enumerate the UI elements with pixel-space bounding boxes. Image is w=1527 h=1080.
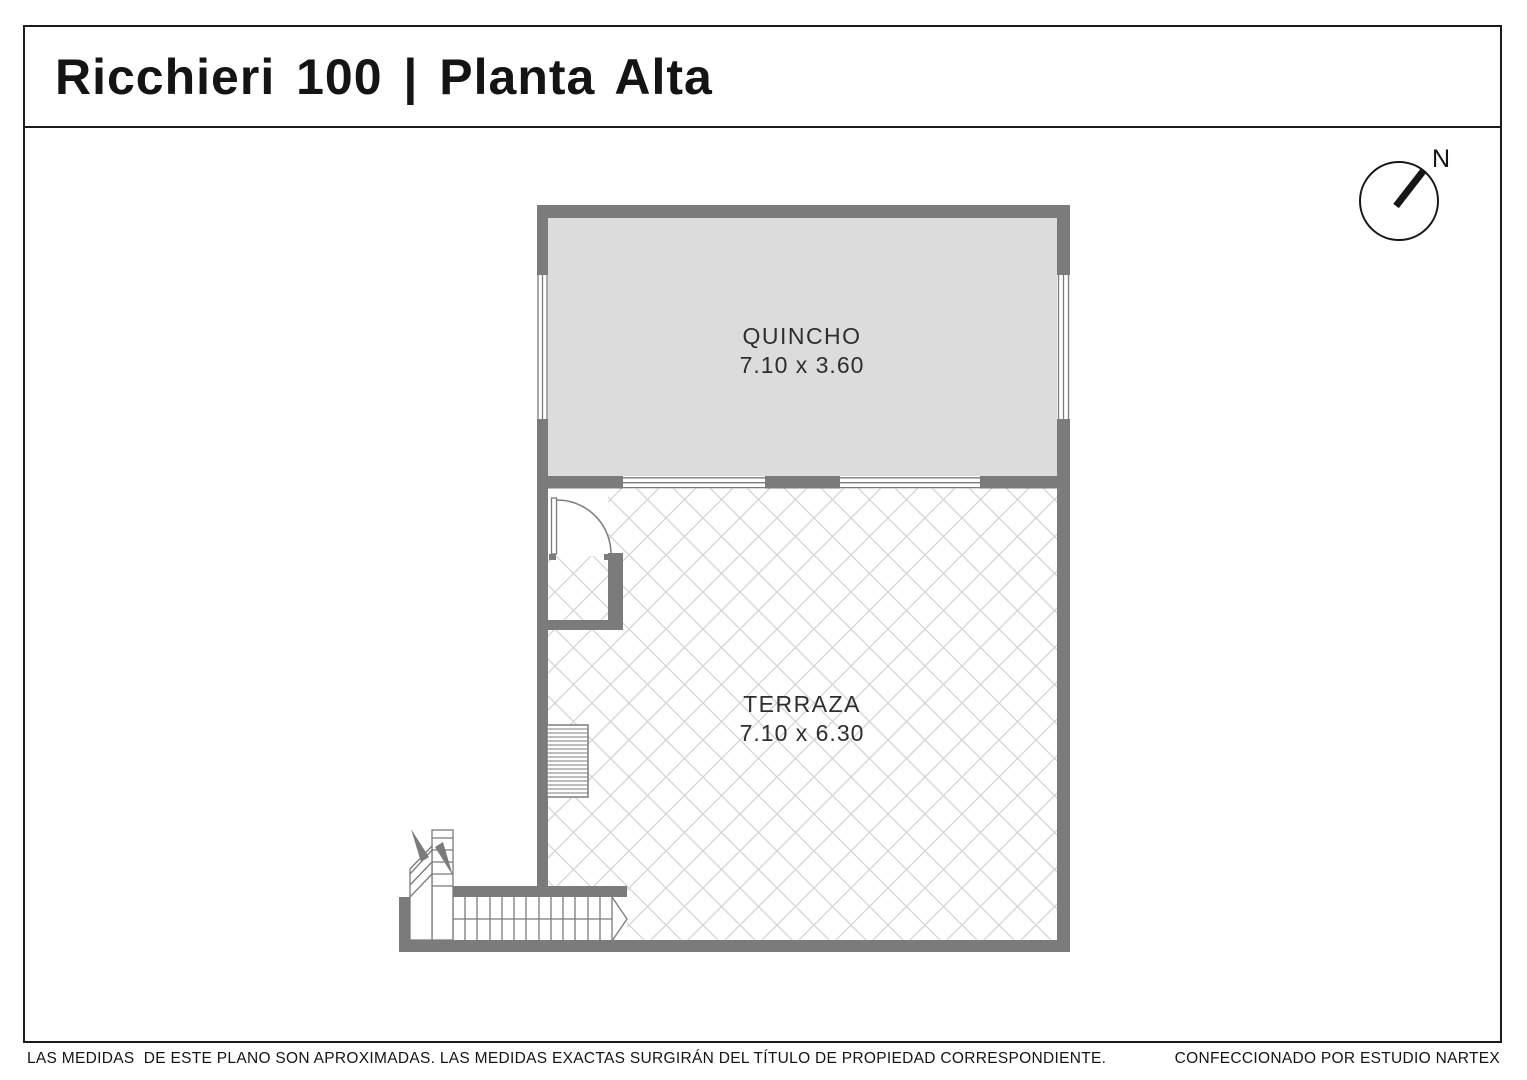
footer: LAS MEDIDAS DE ESTE PLANO SON APROXIMADA… xyxy=(27,1050,1500,1068)
page-frame: Ricchieri 100 | Planta Alta xyxy=(23,25,1502,1043)
floor-plan-page: Ricchieri 100 | Planta Alta xyxy=(0,0,1527,1080)
footer-credit: CONFECCIONADO POR ESTUDIO NARTEX xyxy=(1175,1050,1500,1068)
page-title: Ricchieri 100 | Planta Alta xyxy=(55,48,713,106)
footer-disclaimer: LAS MEDIDAS DE ESTE PLANO SON APROXIMADA… xyxy=(27,1050,1106,1068)
title-band: Ricchieri 100 | Planta Alta xyxy=(25,27,1500,128)
